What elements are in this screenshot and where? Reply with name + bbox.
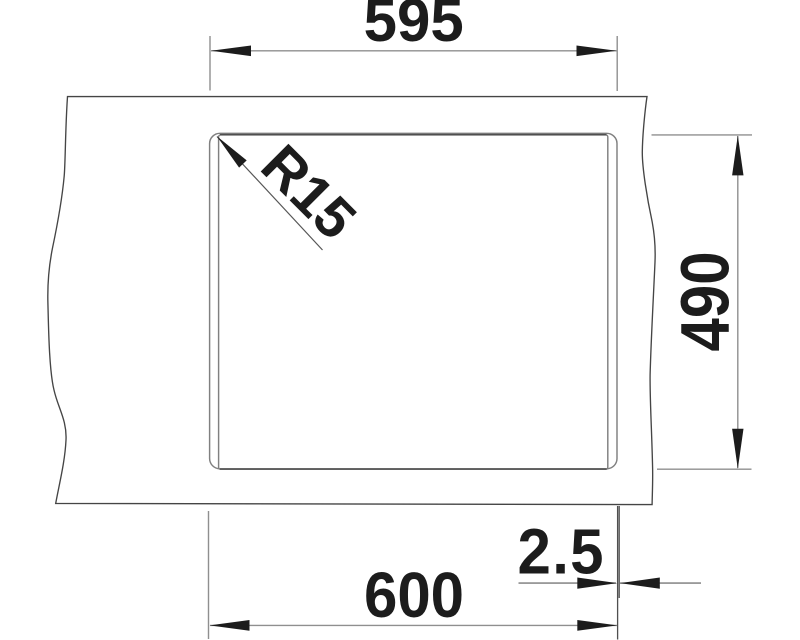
svg-text:2.5: 2.5 xyxy=(518,517,605,588)
svg-text:490: 490 xyxy=(667,251,744,351)
svg-text:595: 595 xyxy=(364,0,464,54)
svg-text:600: 600 xyxy=(364,560,464,631)
svg-text:R15: R15 xyxy=(249,133,368,252)
